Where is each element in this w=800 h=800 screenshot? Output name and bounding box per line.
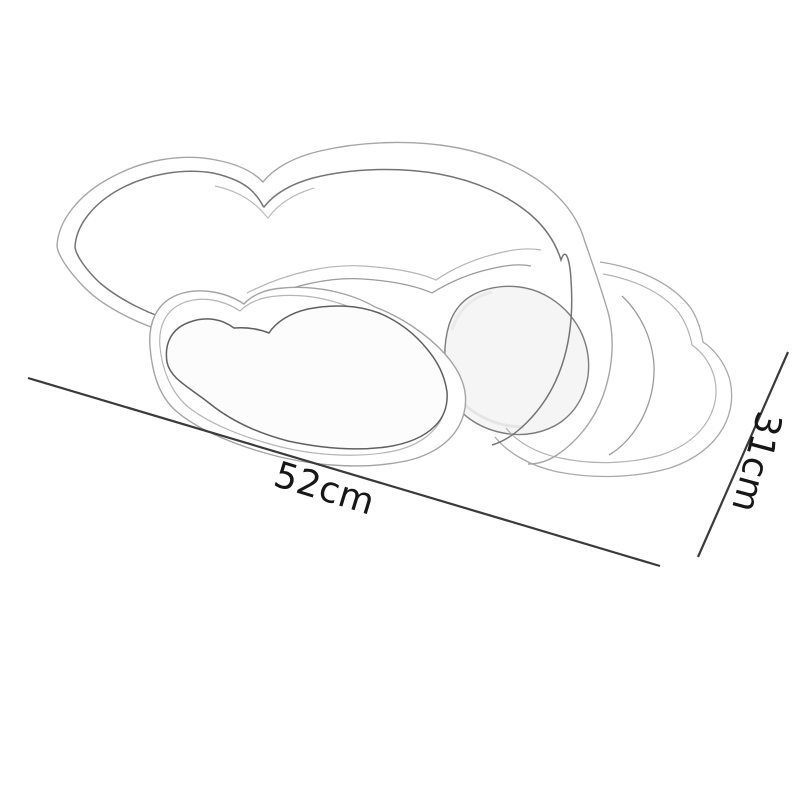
- cloud-lamp-line-drawing: 52cm 31cm: [0, 0, 800, 800]
- depth-dimension-label: 31cm: [723, 407, 789, 517]
- back-ring-opening-upper: [247, 249, 541, 293]
- back-ring-thickness-line: [215, 186, 314, 218]
- right-panel-lit-oval: [445, 286, 589, 434]
- right-panel-oval-right-edge: [609, 296, 654, 455]
- product-image: 52cm 31cm: [0, 0, 800, 800]
- right-cloud-panel: [445, 262, 732, 477]
- center-front-cloud: [150, 287, 466, 466]
